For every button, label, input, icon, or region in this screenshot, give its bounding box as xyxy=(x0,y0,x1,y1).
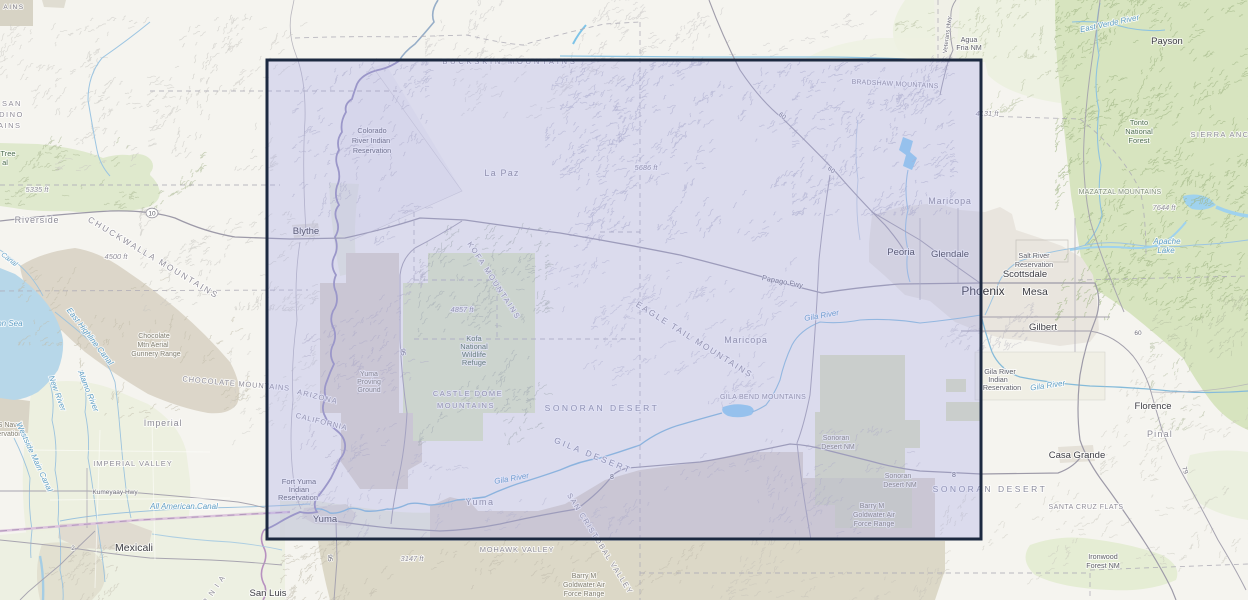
svg-text:4500 ft: 4500 ft xyxy=(105,252,129,261)
svg-text:SAN: SAN xyxy=(2,99,22,108)
svg-text:Goldwater Air: Goldwater Air xyxy=(563,582,606,589)
svg-text:San Luis: San Luis xyxy=(250,588,287,599)
svg-text:Salt River: Salt River xyxy=(1018,251,1050,260)
svg-text:Imperial: Imperial xyxy=(144,418,182,428)
svg-text:5335 ft: 5335 ft xyxy=(26,185,50,194)
svg-text:Kumeyaay Hwy: Kumeyaay Hwy xyxy=(92,489,138,496)
svg-text:Tonto: Tonto xyxy=(1130,118,1148,127)
svg-text:Reservation: Reservation xyxy=(983,383,1021,392)
svg-text:Tree: Tree xyxy=(0,149,15,158)
svg-text:Forest NM: Forest NM xyxy=(1086,561,1120,570)
svg-text:Ironwood: Ironwood xyxy=(1088,552,1118,561)
svg-text:2: 2 xyxy=(71,545,75,552)
svg-text:National: National xyxy=(1125,127,1153,136)
svg-text:Payson: Payson xyxy=(1151,36,1183,47)
svg-text:Barry M: Barry M xyxy=(572,573,597,580)
svg-text:10: 10 xyxy=(148,211,156,218)
svg-text:SANTA CRUZ FLATS: SANTA CRUZ FLATS xyxy=(1048,504,1123,511)
svg-text:Lake: Lake xyxy=(1157,246,1175,255)
svg-text:Force Range: Force Range xyxy=(564,591,605,598)
svg-text:Gunnery Range: Gunnery Range xyxy=(131,351,181,358)
svg-text:al: al xyxy=(2,158,8,167)
svg-text:3147 ft: 3147 ft xyxy=(401,554,425,563)
svg-text:Mtn Aerial: Mtn Aerial xyxy=(137,342,169,349)
svg-text:MAZATZAL MOUNTAINS: MAZATZAL MOUNTAINS xyxy=(1079,189,1162,196)
svg-text:IMPERIAL VALLEY: IMPERIAL VALLEY xyxy=(93,459,173,468)
svg-text:SIERRA ANC: SIERRA ANC xyxy=(1190,130,1248,139)
svg-text:7644 ft: 7644 ft xyxy=(1153,203,1177,212)
svg-text:Riverside: Riverside xyxy=(15,215,60,225)
svg-text:95: 95 xyxy=(326,554,334,562)
svg-text:Mexicali: Mexicali xyxy=(115,542,153,554)
svg-text:Fria NM: Fria NM xyxy=(956,43,982,52)
svg-text:Chocolate: Chocolate xyxy=(138,333,170,340)
svg-text:Apache: Apache xyxy=(1152,237,1181,246)
svg-text:Salton Sea: Salton Sea xyxy=(0,319,23,328)
svg-text:TAINS: TAINS xyxy=(0,121,22,130)
svg-text:Mesa: Mesa xyxy=(1022,286,1048,298)
svg-text:Casa Grande: Casa Grande xyxy=(1049,450,1106,461)
svg-text:Reservation: Reservation xyxy=(1015,260,1053,269)
svg-text:All American Canal: All American Canal xyxy=(149,502,218,511)
svg-text:RDINO: RDINO xyxy=(0,110,24,119)
svg-text:Florence: Florence xyxy=(1135,401,1172,412)
svg-text:Gilbert: Gilbert xyxy=(1029,322,1057,333)
svg-text:60: 60 xyxy=(1134,330,1142,337)
svg-text:AINS: AINS xyxy=(3,4,24,11)
svg-text:Forest: Forest xyxy=(1128,136,1150,145)
svg-text:Pinal: Pinal xyxy=(1147,429,1173,439)
svg-text:MOHAWK VALLEY: MOHAWK VALLEY xyxy=(480,545,555,554)
svg-text:Scottsdale: Scottsdale xyxy=(1003,269,1047,280)
